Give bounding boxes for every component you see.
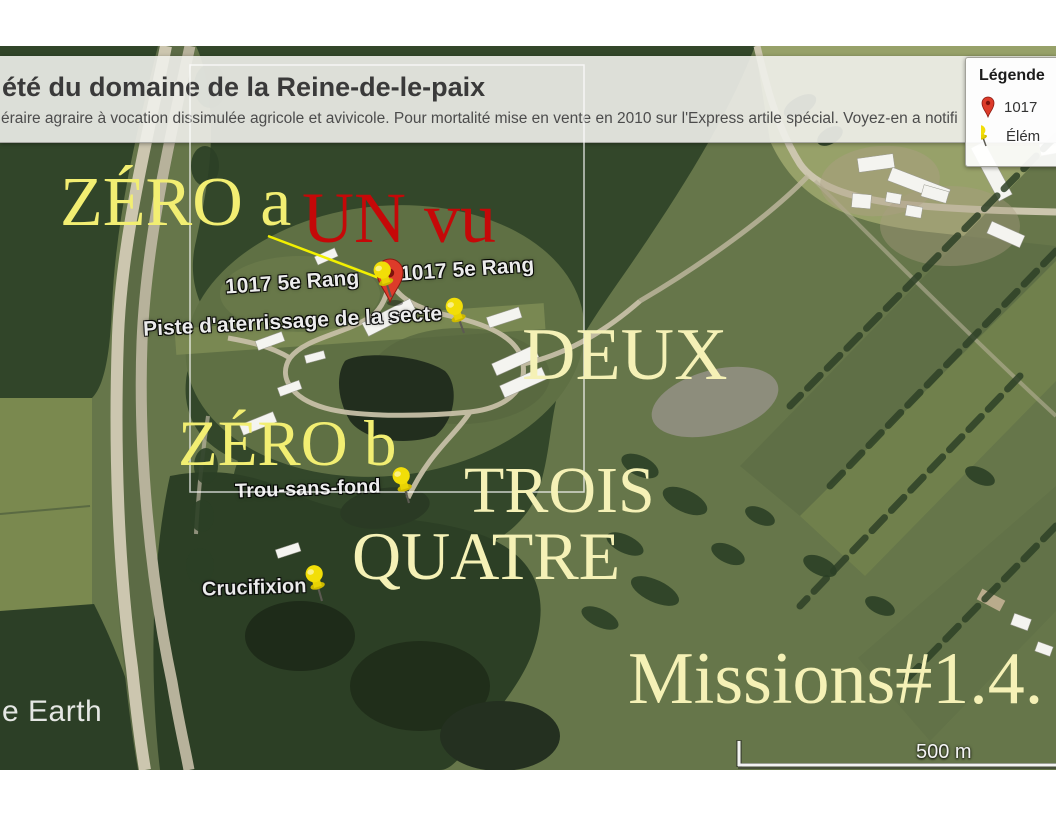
red-map-pin-icon	[981, 96, 995, 118]
legend-item-label: Élém	[1006, 128, 1040, 145]
annotation-zero-b: ZÉRO b	[178, 412, 396, 477]
legend-item-element: Élém	[981, 124, 1040, 148]
legend-panel: Légende 1017 Élém	[965, 57, 1056, 167]
annotation-quatre: QUATRE	[352, 522, 620, 590]
page-title: été du domaine de la Reine-de-le-paix	[2, 72, 485, 103]
annotation-trois: TROIS	[464, 458, 655, 524]
info-banner: été du domaine de la Reine-de-le-paix ér…	[0, 56, 1056, 143]
legend-title: Légende	[979, 67, 1045, 85]
legend-item-1017: 1017	[981, 96, 1037, 118]
annotation-zero-a: ZÉRO a	[60, 168, 291, 238]
page-subtitle: éraire agraire à vocation dissimulée agr…	[1, 110, 1056, 128]
annotation-un-vu: UN vu	[302, 182, 496, 254]
earth-watermark: e Earth	[2, 695, 102, 729]
annotation-deux: DEUX	[522, 318, 728, 392]
map-label-crucifixion: Crucifixion	[202, 575, 307, 602]
scale-bar-label: 500 m	[916, 741, 972, 764]
yellow-pushpin-icon	[981, 124, 997, 148]
legend-item-label: 1017	[1004, 99, 1037, 116]
google-earth-screenshot: 1017 5e Rang 1017 5e Rang Piste d'aterri…	[0, 0, 1056, 816]
annotation-missions: Missions#1.4.	[628, 642, 1043, 716]
